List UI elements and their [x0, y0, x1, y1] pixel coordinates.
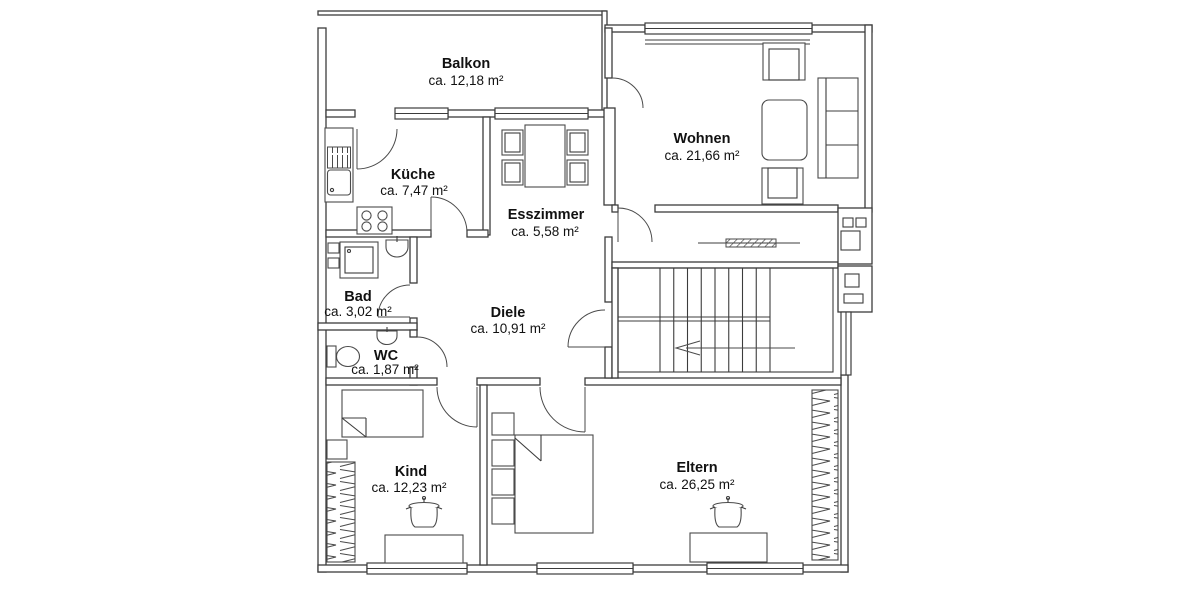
wall-kueche-esszimmer [483, 117, 490, 235]
wall-top-main-a [326, 110, 355, 117]
wall-wohnen-south-stub [612, 205, 618, 212]
wall-mid-horizontal-c [585, 378, 841, 385]
eltern-desk [690, 533, 767, 562]
door-apartment-entry [568, 310, 605, 347]
installation-shaft [838, 208, 872, 312]
wall-diele-stair-a [605, 237, 612, 302]
stair-direction-arrow [676, 341, 795, 355]
kind-desk [385, 535, 463, 563]
balcony-parapet-top [318, 11, 606, 15]
living-armchair-top [763, 43, 805, 80]
floor-plan-drawing: Balkon ca. 12,18 m² Küche ca. 7,47 m² Es… [0, 0, 1200, 600]
living-armchair-bottom [762, 168, 803, 204]
eltern-nightstand [492, 413, 514, 435]
kind-plant-pot-icon [406, 497, 442, 528]
staircase [618, 239, 833, 372]
wall-top-wohnen-b [812, 25, 872, 32]
door-diele-eltern [540, 387, 585, 432]
label-wohnen-name: Wohnen [674, 131, 731, 147]
eltern-shelf-a [492, 440, 514, 466]
wall-bottom-a [318, 565, 367, 572]
label-wohnen-area: ca. 21,66 m² [664, 148, 740, 163]
eltern-plant-pot-icon [710, 497, 746, 528]
wall-mid-horizontal-b [477, 378, 540, 385]
door-kueche-esszimmer [431, 197, 467, 233]
window-wohnen-top [645, 23, 812, 44]
dining-table-set [502, 125, 588, 187]
outer-wall-left [318, 28, 326, 572]
kind-nightstand [327, 440, 347, 459]
wall-kueche-south-b [467, 230, 488, 237]
floor-plan-canvas: Balkon ca. 12,18 m² Küche ca. 7,47 m² Es… [0, 0, 1200, 600]
door-esszimmer-wohnen [612, 78, 643, 108]
wall-bad-wc [318, 323, 417, 330]
window-eltern-bottom-left [537, 563, 633, 574]
label-kueche-area: ca. 7,47 m² [380, 183, 448, 198]
bath-cabinet-b [328, 258, 339, 268]
label-balkon-area: ca. 12,18 m² [428, 73, 504, 88]
window-stairwell-right [841, 312, 851, 375]
eltern-wardrobe [812, 390, 838, 560]
kitchen-stove [357, 207, 392, 234]
radiator-landing [698, 239, 800, 247]
label-kind-area: ca. 12,23 m² [371, 480, 447, 495]
outer-wall-right-lower [841, 375, 848, 572]
window-kueche-balcony [395, 108, 448, 119]
wall-esszimmer-wohnen [604, 108, 615, 205]
door-diele-wc [417, 337, 447, 367]
wall-kind-eltern [480, 385, 487, 565]
wall-mid-horizontal-a [326, 378, 437, 385]
wall-bad-diele-a [410, 237, 417, 283]
label-kueche-name: Küche [391, 167, 435, 183]
kitchen-counter [325, 128, 353, 202]
door-balcony-kueche [357, 129, 397, 169]
wall-bottom-b [467, 565, 537, 572]
door-landing-wohnen [618, 208, 652, 242]
wall-bottom-c [633, 565, 707, 572]
label-esszimmer-area: ca. 5,58 m² [511, 224, 579, 239]
wall-bottom-d [803, 565, 848, 572]
wall-stair-top [612, 262, 838, 268]
dining-table [525, 125, 565, 187]
wall-stair-left [612, 268, 618, 378]
living-sofa [818, 78, 858, 178]
bath-cabinet-a [328, 243, 339, 253]
bath-shower [340, 242, 378, 278]
window-kind-bottom [367, 563, 467, 574]
eltern-shelf-c [492, 498, 514, 524]
wall-esszimmer-wohnen-stub [605, 28, 612, 78]
label-bad-name: Bad [344, 289, 371, 305]
label-kind-name: Kind [395, 464, 427, 480]
wall-top-main-b [448, 110, 495, 117]
window-eltern-bottom-right [707, 563, 803, 574]
wall-wohnen-south [655, 205, 838, 212]
kind-wardrobe [327, 462, 355, 562]
label-balkon-name: Balkon [442, 56, 490, 72]
bath-sink [386, 236, 408, 257]
label-wc-area: ca. 1,87 m² [351, 362, 419, 377]
label-diele-area: ca. 10,91 m² [470, 321, 546, 336]
label-diele-name: Diele [491, 305, 526, 321]
label-bad-area: ca. 3,02 m² [324, 304, 392, 319]
wall-diele-stair-b [605, 347, 612, 378]
label-eltern-name: Eltern [676, 460, 717, 476]
label-esszimmer-name: Esszimmer [508, 207, 585, 223]
kind-bed [342, 390, 423, 437]
eltern-double-bed [515, 435, 593, 533]
window-esszimmer-balcony [495, 108, 588, 119]
label-eltern-area: ca. 26,25 m² [659, 477, 735, 492]
door-diele-kind [437, 387, 477, 427]
wall-wc-diele-a [410, 330, 417, 337]
eltern-shelf-b [492, 469, 514, 495]
outer-wall-right-upper [865, 25, 872, 212]
living-coffee-table [762, 100, 807, 160]
